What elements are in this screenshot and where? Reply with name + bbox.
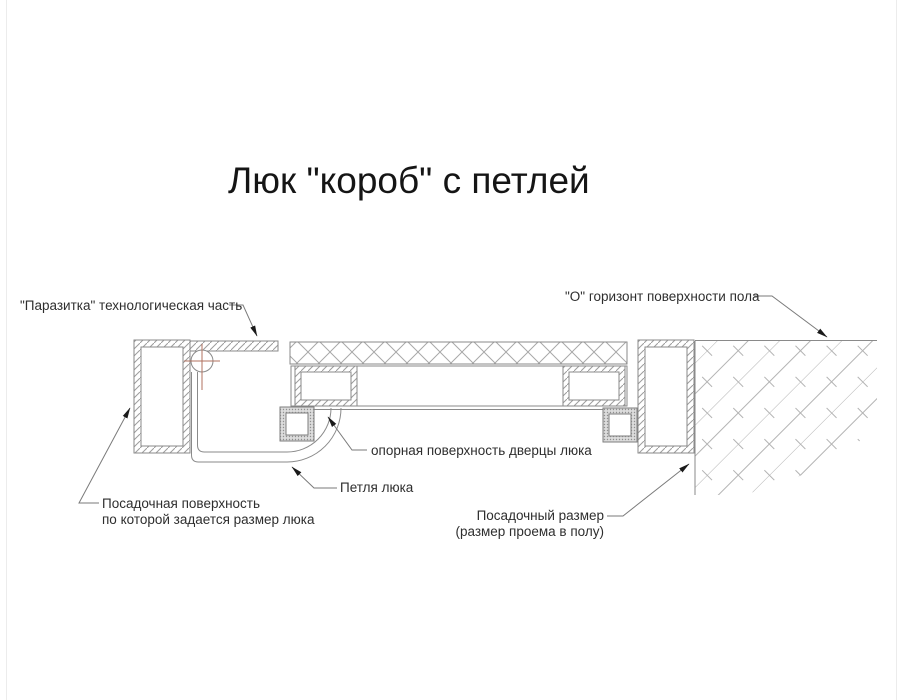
- leader-seating-size: [607, 464, 689, 516]
- label-seating-surface-line2: по которой задается размер люка: [102, 512, 315, 527]
- label-support-surface: опорная поверхность дверцы люка: [371, 443, 592, 458]
- label-seating-surface-line1: Посадочная поверхность: [102, 496, 260, 511]
- technical-drawing: "Паразитка" технологическая часть "О" го…: [0, 0, 900, 700]
- screenshot-page: Люк "короб" с петлей: [0, 0, 900, 700]
- label-horizon: "О" горизонт поверхности пола: [565, 289, 760, 304]
- parasitka-flange: [190, 341, 278, 351]
- label-parasitka: "Паразитка" технологическая часть: [20, 298, 242, 313]
- left-support-tube: [280, 407, 314, 441]
- door-left-profile: [295, 366, 357, 406]
- leader-support-surface: [328, 417, 367, 450]
- hatch-door: [290, 342, 628, 410]
- label-seating-size-line1: Посадочный размер: [477, 508, 604, 523]
- right-frame-profile: [638, 340, 694, 453]
- leader-horizon: [754, 296, 827, 337]
- leader-hinge: [292, 467, 337, 488]
- floor-mass: [695, 341, 877, 496]
- label-hinge: Петля люка: [340, 480, 414, 495]
- right-support-tube: [603, 408, 637, 442]
- door-right-profile: [563, 366, 625, 406]
- door-tile-band: [290, 342, 627, 364]
- label-seating-size-line2: (размер проема в полу): [455, 524, 604, 539]
- leader-seating-surface: [79, 408, 130, 503]
- left-frame-profile: [134, 340, 190, 453]
